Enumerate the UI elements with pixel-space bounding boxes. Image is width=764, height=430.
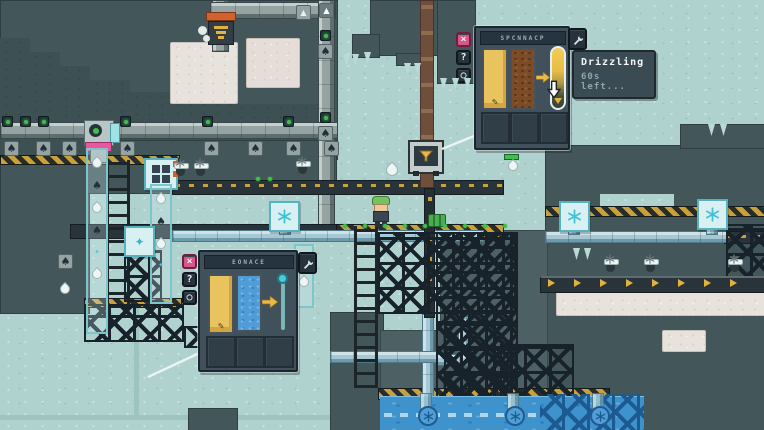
conveyor-arrow-icon [626,279,633,287]
mini-snowflake-icon [729,249,739,268]
panel-title-text: SPCNNACP [501,35,546,42]
conveyor-arrow-icon [678,279,685,287]
sparkle-icon: ✦ [158,261,163,270]
wrench-icon [301,257,314,270]
conveyor-arrow-icon [652,279,659,287]
spade-icon: ♠ [251,143,261,154]
icicle [440,78,447,90]
water-drop-icon [90,267,104,281]
ladder [354,226,378,388]
spade-plate: ♠ [324,141,339,156]
process-arrow-icon [262,296,278,308]
close-button[interactable]: × [182,254,197,269]
storage-slot-empty[interactable] [510,112,539,144]
spade-plate: ♠ [58,254,73,269]
mini-snowflake-icon [645,249,655,268]
filter-grid-window [152,165,170,183]
hopper-machine[interactable] [206,12,236,46]
water-drop-icon [297,275,311,289]
panel-link-line [148,352,201,378]
spade-icon: ♠ [92,180,102,191]
funnel-machine-screen [414,146,438,166]
dispenser-eye [89,124,102,137]
water-pump[interactable] [418,406,438,426]
storage-slot-empty[interactable] [235,336,265,368]
conveyor-arrow-icon [600,279,607,287]
up-arrow-icon: ▲ [323,7,329,15]
character-leg [375,222,380,227]
wrench-icon [571,33,584,46]
water-drop-icon [154,192,168,206]
indicator-dot [268,177,272,181]
rail-signal-light [320,112,331,123]
close-button[interactable]: × [456,32,471,47]
spade-plate: ♠ [36,141,51,156]
conveyor-arrow-icon [704,279,711,287]
storage-slot-empty[interactable] [206,336,236,368]
indicator-dot [343,224,347,228]
spade-icon: ♠ [92,225,102,236]
spade-icon: ♠ [321,128,331,139]
spade-icon: ♠ [327,143,337,154]
rail-signal-light [320,30,331,41]
spade-icon: ♠ [61,256,71,267]
up-arrow-plate: ▲ [296,5,311,20]
icicle [452,78,459,90]
icicle [464,78,471,90]
spade-icon: ♠ [321,46,331,57]
panel-title: EONACE [204,255,294,269]
background-pipe-line [0,415,336,420]
water-pipe [330,351,442,363]
spade-icon: ♠ [65,143,75,154]
crystal-icon: ✦ [134,235,144,249]
conveyor-arrow-icon [730,279,737,287]
rail-signal-light [2,116,13,127]
help-icon: ? [186,274,192,285]
smoke-puff [203,35,210,42]
funnel-machine[interactable] [408,140,444,174]
spade-plate: ♠ [120,141,135,156]
game-viewport: ▲ ▲ [0,0,764,430]
icicle [404,63,411,75]
water-pump[interactable] [590,406,610,426]
help-button[interactable]: ? [456,50,471,65]
signal-icon [216,31,226,34]
indicator-dot [503,224,507,228]
feather-icon: ✎ [218,321,224,332]
item-tube[interactable]: ♠♠✦ [86,148,108,334]
icicle [343,54,350,66]
spade-plate: ♠ [62,141,77,156]
machine-foot [433,171,439,176]
panel-title-text: EONACE [232,259,266,266]
water-drop-icon [506,159,520,173]
spade-plate: ♠ [318,126,333,141]
snow-patch [662,330,706,352]
hopper-cap [206,12,236,21]
close-icon: × [186,256,192,267]
output-slider-track [281,278,285,330]
player-character [372,196,390,228]
water-drop-icon [90,201,104,215]
storage-slot-empty[interactable] [539,112,568,144]
spade-plate: ♠ [318,44,333,59]
spade-plate: ♠ [248,141,263,156]
spade-icon: ♠ [7,143,17,154]
signal-icon [214,26,228,29]
help-button[interactable]: ? [182,272,197,287]
smoke-puff [198,26,207,35]
terrain-step [0,38,30,158]
indicator-dot [363,224,367,228]
status-tooltip: Drizzling 60s left... [572,50,656,99]
tooltip-title: Drizzling [581,57,647,68]
spade-icon: ♠ [156,216,166,227]
indicator-dot [383,224,387,228]
rail-signal-light [283,116,294,127]
help-icon: ? [460,52,466,63]
indicator-dot [423,224,427,228]
indicator-dot [463,224,467,228]
rail-signal-light [38,116,49,127]
conveyor-arrow-icon [548,279,555,287]
mini-snowflake-icon [195,153,205,172]
dispenser-side-tab [110,123,120,143]
sparkle-icon: ✦ [94,248,99,257]
mouse-cursor [547,80,561,99]
up-arrow-icon: ▲ [300,9,306,17]
config-button[interactable] [568,28,587,50]
indicator-dot [256,177,260,181]
rail-signal-light [20,116,31,127]
up-arrow-plate: ▲ [319,3,334,18]
water-drop-icon [90,156,104,170]
chiller-machine[interactable] [559,201,590,232]
storage-slot-empty[interactable] [481,112,510,144]
snow-patch [246,38,300,88]
machine-foot [413,171,419,176]
config-button[interactable] [298,252,317,274]
tooltip-time-left: 60s left... [581,72,647,92]
spade-plate: ♠ [204,141,219,156]
rail-signal-light [202,116,213,127]
beam-with-markers [172,180,504,195]
input-slot-dirt[interactable] [510,48,536,110]
mini-snowflake-icon [297,151,307,170]
indicator-dot [403,224,407,228]
spade-icon: ♠ [123,143,133,154]
indicator-dot [443,224,447,228]
spade-icon: ♠ [207,143,217,154]
water-pump[interactable] [505,406,525,426]
signal-icon [218,36,224,39]
character-body [373,211,389,222]
icicle [364,52,371,64]
scaffold-truss [500,344,574,398]
terrain-block [188,408,238,430]
output-slider[interactable] [550,46,566,110]
machine-panel-bottom: EONACE ✎ [198,250,298,372]
indicator-dot [483,224,487,228]
output-slider-knob[interactable] [277,273,288,284]
mini-snowflake-icon [175,153,185,172]
crystal-machine[interactable]: ✦ [124,226,155,257]
input-slot-canister[interactable]: ✎ [208,274,234,334]
close-icon: × [460,34,466,45]
rail-signal-light [120,116,131,127]
spade-icon: ♠ [39,143,49,154]
icicle [352,54,359,66]
input-slot-water[interactable] [236,274,262,332]
funnel-icon [418,148,434,164]
pin-icon: ○ [186,292,192,303]
chiller-machine[interactable] [269,201,300,232]
water-drop-icon [384,162,401,179]
input-slot-canister[interactable]: ✎ [482,48,508,110]
panel-title: SPCNNACP [480,31,566,45]
feather-icon: ✎ [492,97,498,108]
water-drop-icon [154,237,168,251]
pin-button[interactable]: ○ [182,290,197,305]
mini-snowflake-icon [605,249,615,268]
conveyor-arrow-icon [574,279,581,287]
storage-slot-empty[interactable] [264,336,294,368]
spade-plate: ♠ [4,141,19,156]
chiller-machine[interactable] [697,199,728,230]
